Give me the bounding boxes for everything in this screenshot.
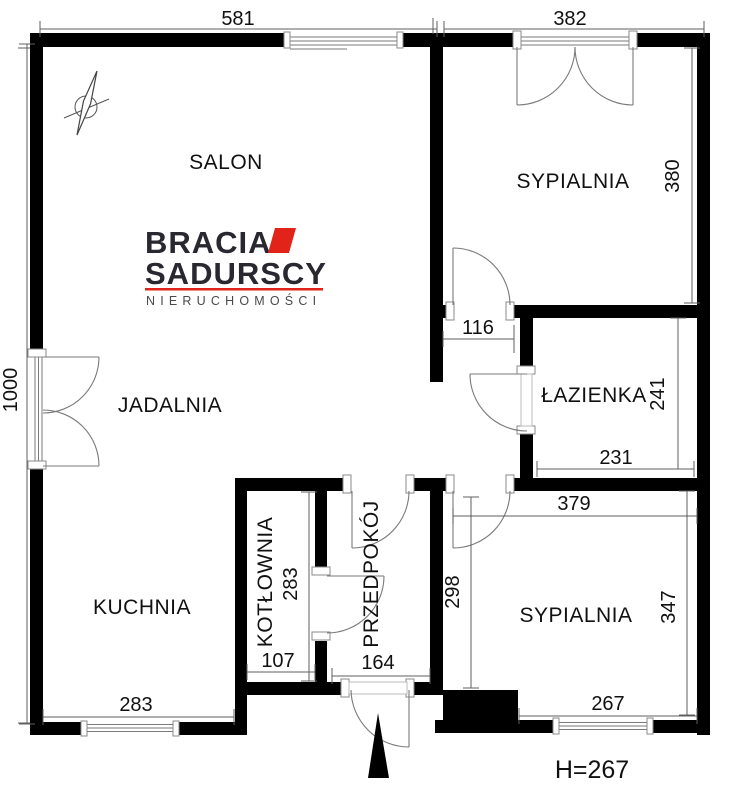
bedroom1-french-window [513,31,637,105]
salon-window [284,32,403,49]
dim-label-382: 382 [553,8,586,30]
dim-label-581: 581 [221,8,254,30]
dim-bathroom-width: 231 [537,447,694,477]
dim-bedroom1-width: 382 [444,8,704,37]
ceiling-height-label: H=267 [555,756,629,784]
dim-label-164: 164 [361,652,394,674]
wall-bed2-bottom-b [650,720,710,733]
north-arrow-icon [64,71,109,135]
wall-right [697,47,710,735]
dim-salon-width: 581 [40,8,437,37]
wall-left-lower [30,467,43,735]
dim-bedroom2-height-right: 347 [658,491,695,715]
bedroom1-door [446,248,514,320]
dining-french-window [28,349,99,469]
dim-label-241: 241 [647,377,669,410]
wall-salon-bed1-divider [430,33,443,382]
dim-bedroom2-width-top: 379 [453,493,697,524]
wall-kitchen-bottom-a [30,722,84,735]
dim-kitchen-width: 283 [43,694,234,725]
dim-bedroom2-width-bottom: 267 [519,693,697,724]
dim-label-283-kitchen: 283 [119,694,152,716]
dim-label-231: 231 [599,447,632,469]
logo-underline [145,288,323,291]
wall-mid-bottom-a [235,682,348,695]
wall-bath-left-lower [520,430,533,480]
room-label-dining: JADALNIA [118,394,222,417]
room-label-hall: PRZEDPOKÓJ [360,500,383,647]
bedroom2-door [446,475,514,548]
dim-label-298: 298 [442,575,464,608]
entrance-door [341,679,414,778]
dim-label-1000: 1000 [0,368,22,413]
entrance-arrow [368,713,389,778]
wall-bed1-bottom-b [511,305,697,318]
bathroom-door [470,366,535,434]
dim-total-height: 1000 [0,44,35,724]
room-label-boiler: KOTŁOWNIA [254,517,277,648]
dim-label-283-boiler: 283 [280,567,302,600]
wall-hall-top-a [235,478,350,491]
wall-top-left [30,33,287,47]
wall-boiler-divider-lower [315,641,327,682]
wall-mid-bottom-b [410,682,443,695]
floor-plan-svg: 581 382 1000 380 116 [0,0,741,800]
room-label-kitchen: KUCHNIA [93,596,191,619]
room-label-bedroom2: SYPIALNIA [519,604,632,627]
dim-label-379: 379 [557,493,590,515]
logo-brand-line1: BRACIA [145,225,272,260]
dim-bathroom-height: 241 [647,318,686,469]
wall-top-mid [400,33,517,47]
dim-bedroom1-height: 380 [662,48,700,303]
wall-kitchen-right [235,478,247,735]
dim-boiler-width: 107 [247,650,315,680]
dim-label-347: 347 [658,590,680,623]
room-label-salon: SALON [189,151,263,174]
dim-corridor-width: 116 [443,317,514,353]
dim-bedroom2-height-left: 298 [442,497,479,688]
wall-top-right [633,33,710,47]
wall-left-upper [30,47,43,353]
shaft-block [443,690,518,730]
room-label-bedroom1: SYPIALNIA [516,170,629,193]
brand-logo: BRACIA SADURSCY NIERUCHOMOŚCI [145,225,327,308]
dim-label-116: 116 [462,317,494,339]
logo-accent-mark [268,228,296,253]
logo-brand-line2: SADURSCY [145,256,327,291]
kitchen-window [81,721,179,736]
dim-label-380: 380 [662,159,684,192]
room-label-bathroom: ŁAZIENKA [541,384,647,407]
bedroom2-window [553,718,653,734]
floor-plan: 581 382 1000 380 116 [0,0,741,800]
dim-label-267: 267 [591,693,624,715]
dim-label-107: 107 [261,650,294,672]
logo-tagline: NIERUCHOMOŚCI [146,293,321,308]
wall-bath-bottom [511,478,697,491]
wall-bath-left-upper [520,318,533,373]
